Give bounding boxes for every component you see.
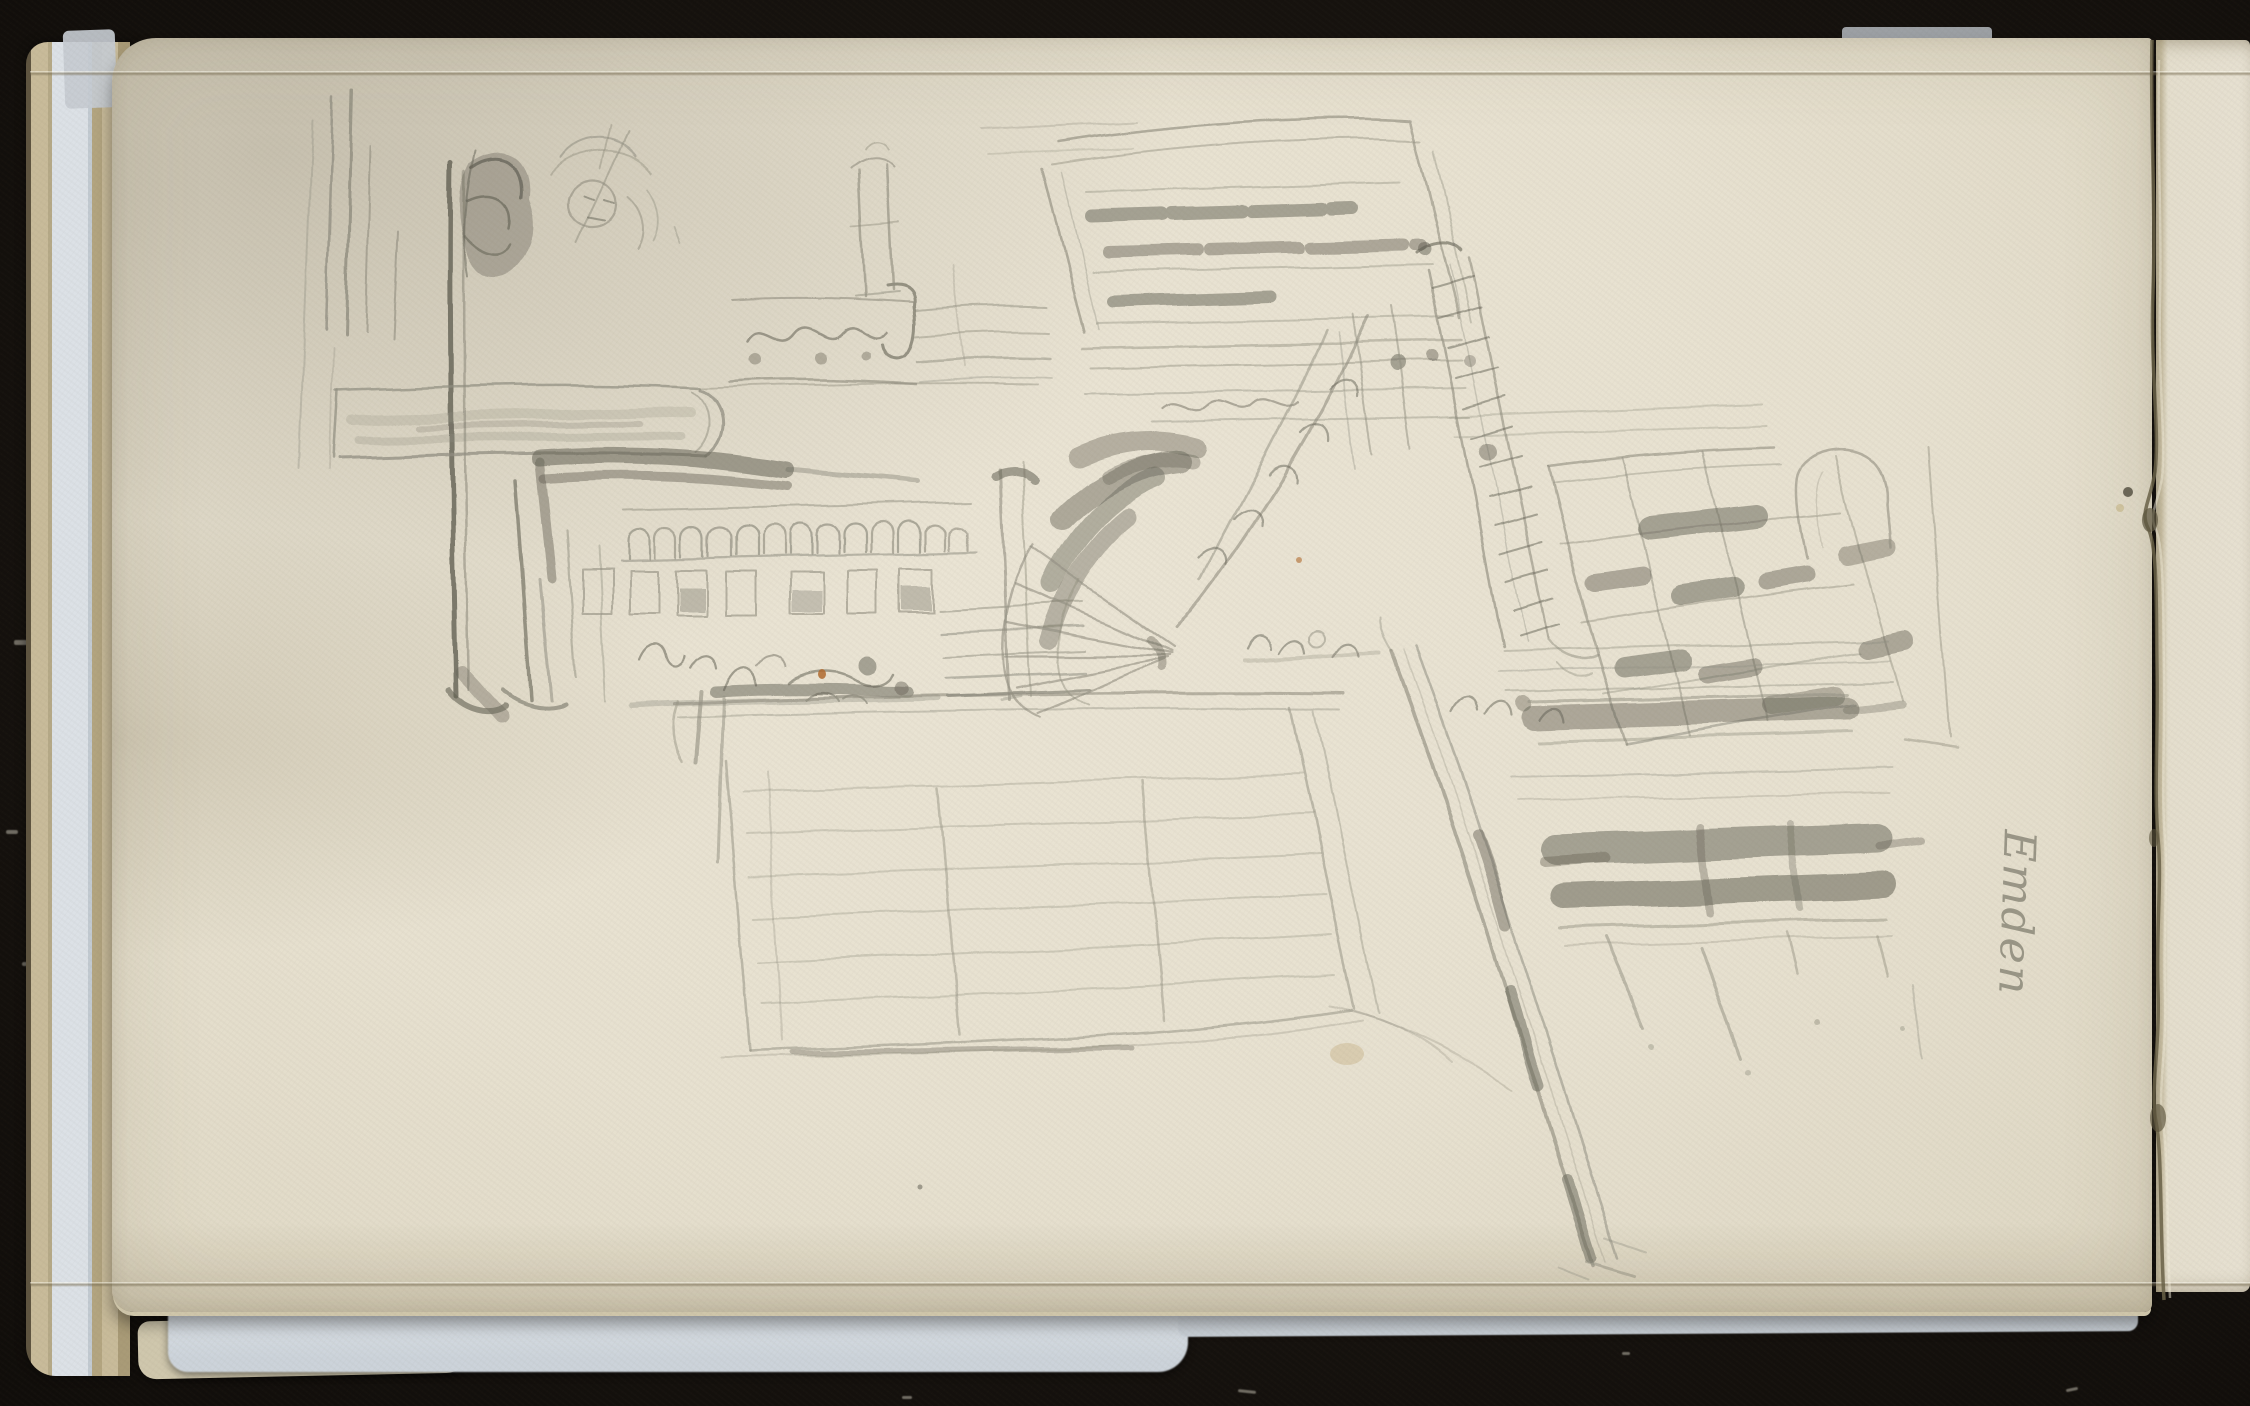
sketch-portal-arch [952, 266, 1412, 718]
paper-stains [818, 557, 1364, 1190]
pencil-sketch [0, 0, 2250, 1406]
torn-page-edge [2116, 40, 2170, 1300]
sketch-shaded-curl [460, 150, 532, 278]
sketch-carved-jamb-band [1416, 241, 1598, 677]
sketch-finial-figure [550, 126, 682, 248]
sketch-arcade-balustrade [620, 502, 975, 560]
sketch-horizontal-beam [334, 383, 1038, 458]
sketch-pinnacle [850, 143, 898, 297]
sketch-entablature [1086, 350, 1470, 422]
sketch-chimney-strokes [299, 90, 398, 470]
sketch-shuttered-windows [1498, 640, 1922, 1075]
sketch-lintel-and-jamb [504, 455, 918, 707]
inscription-emden: Emden [1985, 817, 2048, 1009]
scan-stage: Emden [0, 0, 2250, 1406]
sketch-small-figures-right [1244, 630, 1564, 722]
sketch-roof [1042, 118, 1472, 348]
sketch-awning [673, 692, 1512, 1090]
sketch-gallery-windows [582, 568, 932, 616]
sketch-carved-frieze [730, 285, 1052, 384]
sketch-faint-marks [982, 122, 1136, 154]
